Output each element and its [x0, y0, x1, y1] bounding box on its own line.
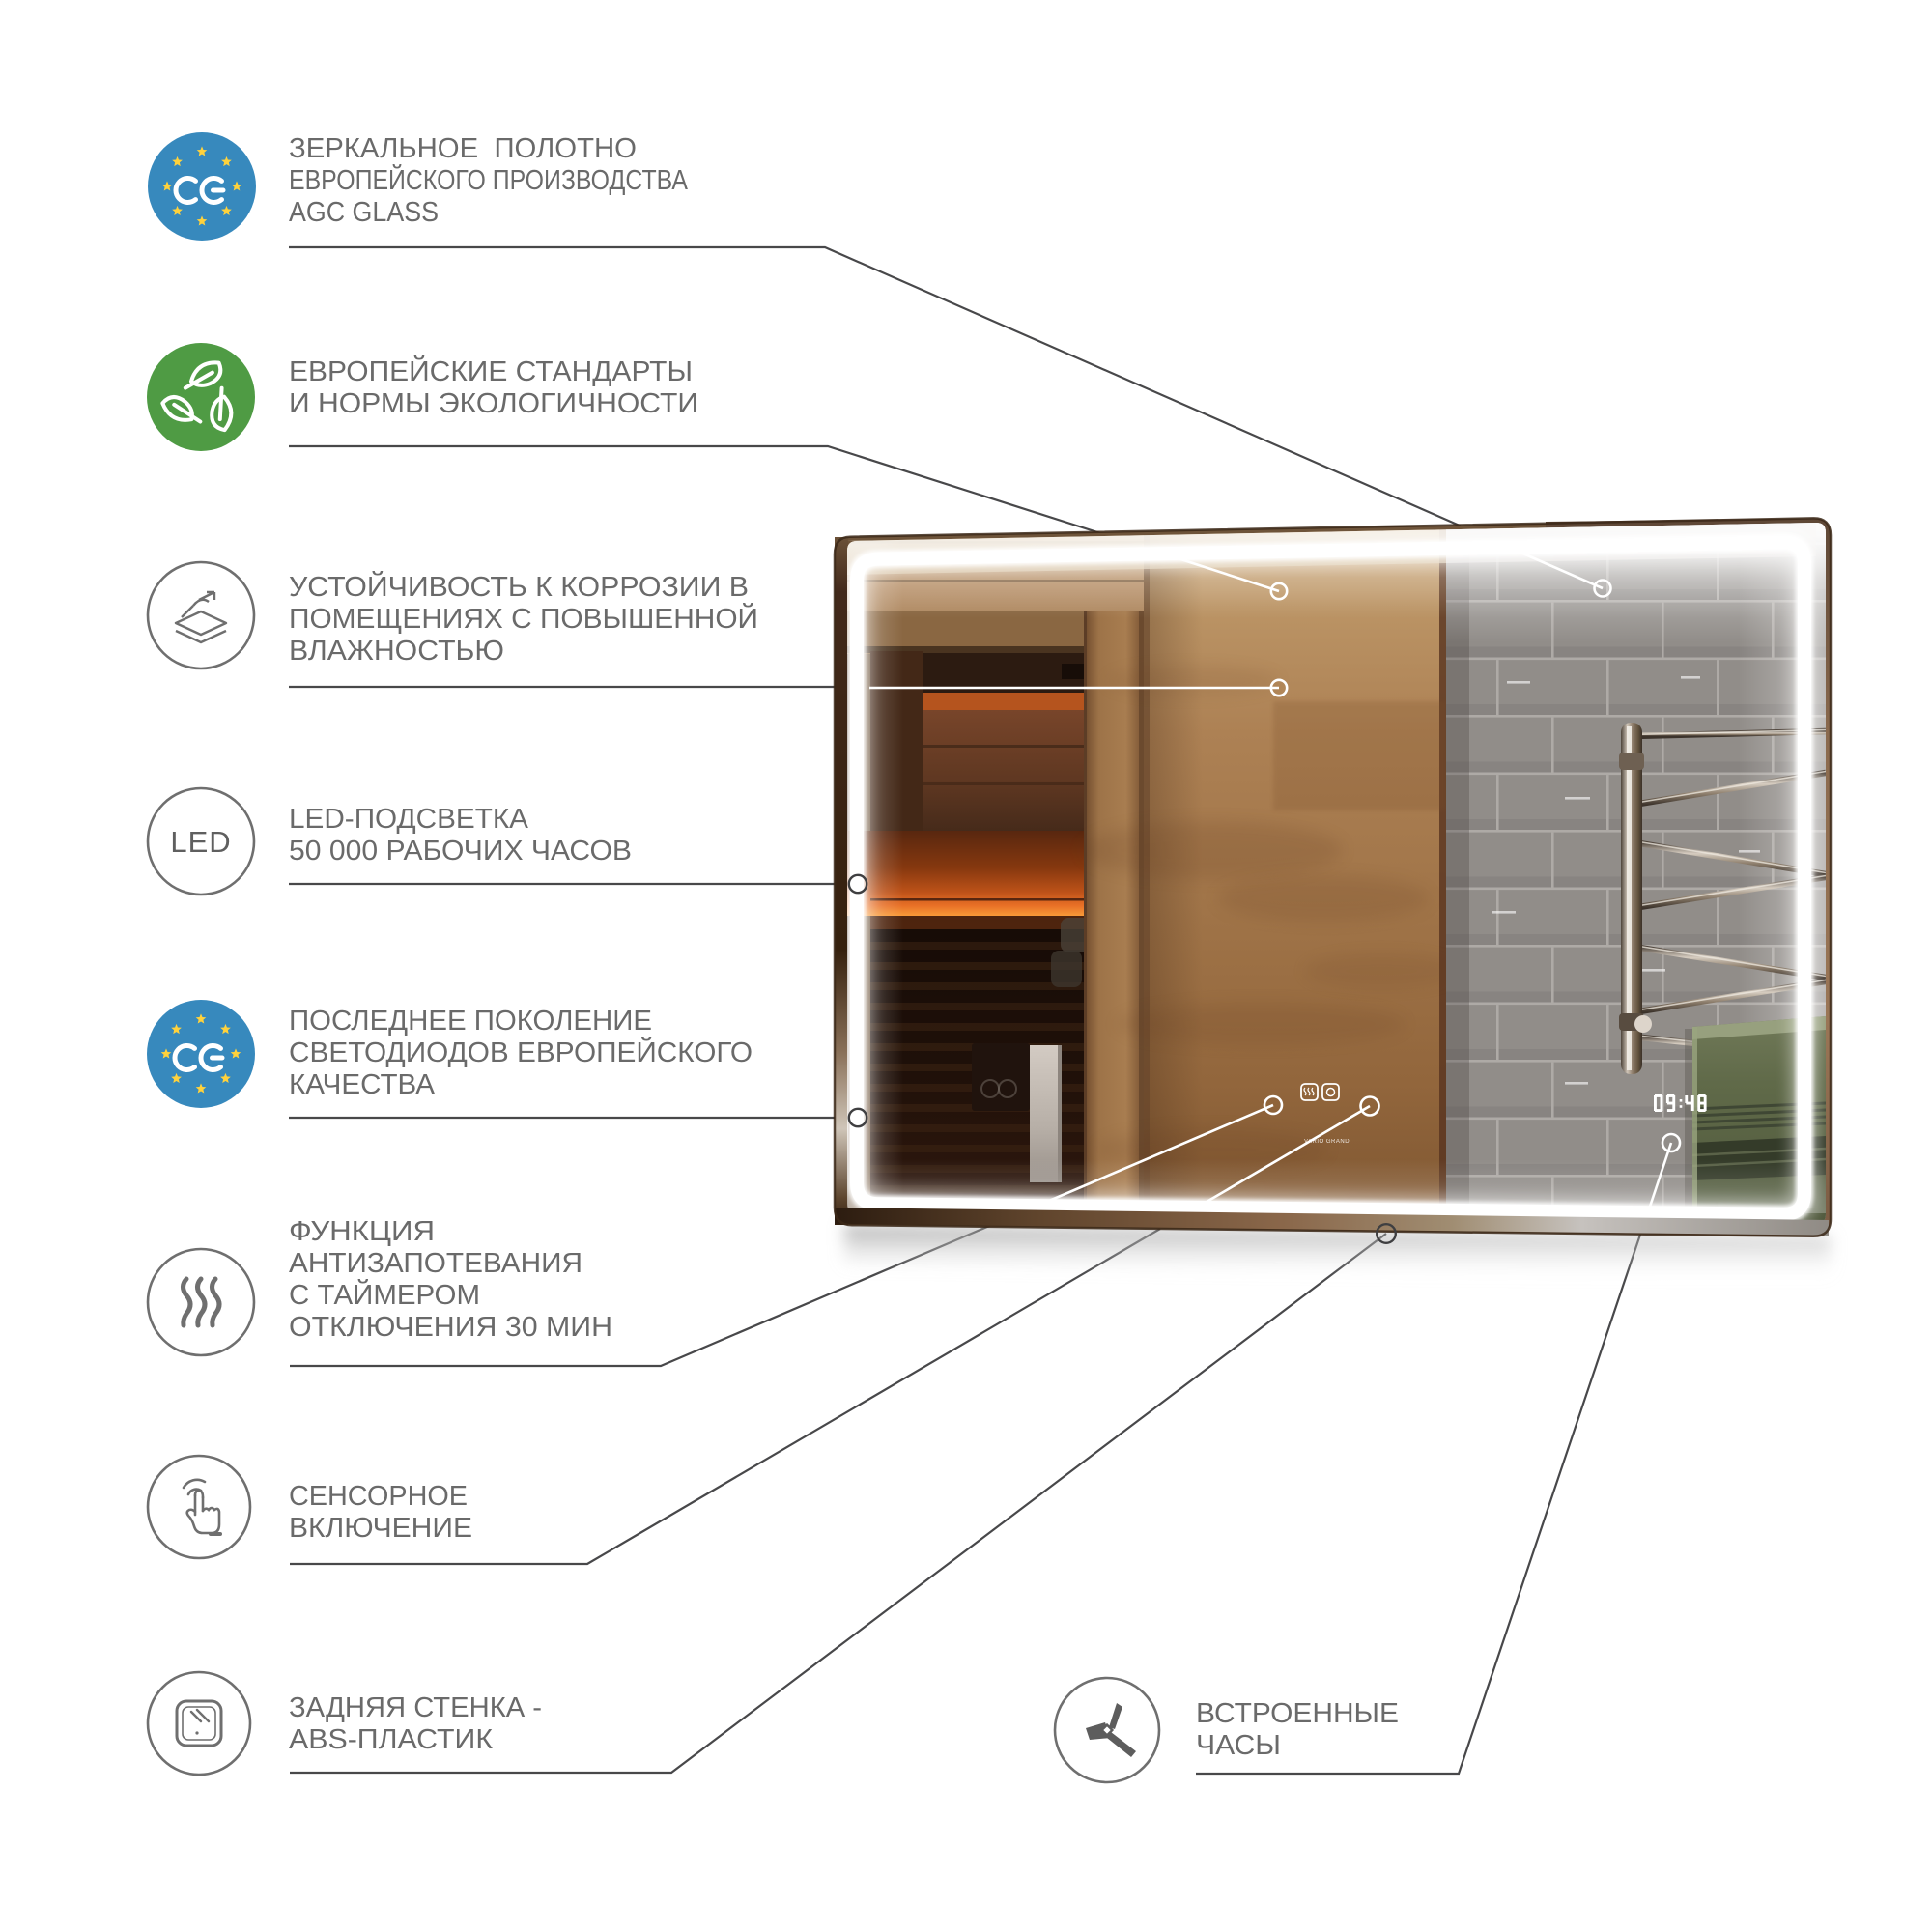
svg-text:ВСТРОЕННЫЕ: ВСТРОЕННЫЕ: [1196, 1698, 1399, 1729]
svg-text:ФУНКЦИЯ: ФУНКЦИЯ: [289, 1216, 435, 1247]
svg-text:С ТАЙМЕРОМ: С ТАЙМЕРОМ: [289, 1278, 480, 1311]
svg-text:ПОСЛЕДНЕЕ ПОКОЛЕНИЕ: ПОСЛЕДНЕЕ ПОКОЛЕНИЕ: [289, 1006, 652, 1037]
svg-text:ОТКЛЮЧЕНИЯ 30 МИН: ОТКЛЮЧЕНИЯ 30 МИН: [289, 1312, 612, 1343]
svg-text:ЗАДНЯЯ СТЕНКА -: ЗАДНЯЯ СТЕНКА -: [289, 1692, 542, 1723]
svg-text:ABS-ПЛАСТИК: ABS-ПЛАСТИК: [289, 1724, 493, 1755]
svg-text:LED: LED: [170, 825, 231, 859]
svg-text:ЗЕРКАЛЬНОЕ ПОЛОТНО: ЗЕРКАЛЬНОЕ ПОЛОТНО: [289, 133, 637, 164]
svg-text:LED-ПОДСВЕТКА: LED-ПОДСВЕТКА: [289, 804, 529, 835]
svg-text:AGC GLASS: AGC GLASS: [289, 197, 439, 228]
svg-text:КАЧЕСТВА: КАЧЕСТВА: [289, 1069, 436, 1100]
svg-text:ЧАСЫ: ЧАСЫ: [1196, 1730, 1281, 1761]
svg-text:АНТИЗАПОТЕВАНИЯ: АНТИЗАПОТЕВАНИЯ: [289, 1248, 582, 1279]
svg-text:УСТОЙЧИВОСТЬ К КОРРОЗИИ В: УСТОЙЧИВОСТЬ К КОРРОЗИИ В: [289, 570, 749, 603]
svg-text:ВЛАЖНОСТЬЮ: ВЛАЖНОСТЬЮ: [289, 636, 504, 667]
svg-text:ВКЛЮЧЕНИЕ: ВКЛЮЧЕНИЕ: [289, 1513, 472, 1544]
svg-text:50 000 РАБОЧИХ ЧАСОВ: 50 000 РАБОЧИХ ЧАСОВ: [289, 836, 632, 867]
svg-text:ПОМЕЩЕНИЯХ С ПОВЫШЕННОЙ: ПОМЕЩЕНИЯХ С ПОВЫШЕННОЙ: [289, 602, 758, 635]
svg-text:ЕВРОПЕЙСКОГО ПРОИЗВОДСТВА: ЕВРОПЕЙСКОГО ПРОИЗВОДСТВА: [289, 163, 689, 196]
svg-text:ЕВРОПЕЙСКИЕ СТАНДАРТЫ: ЕВРОПЕЙСКИЕ СТАНДАРТЫ: [289, 355, 693, 387]
svg-text:СВЕТОДИОДОВ ЕВРОПЕЙСКОГО: СВЕТОДИОДОВ ЕВРОПЕЙСКОГО: [289, 1036, 753, 1068]
svg-text:И НОРМЫ ЭКОЛОГИЧНОСТИ: И НОРМЫ ЭКОЛОГИЧНОСТИ: [289, 388, 698, 419]
svg-text:СЕНСОРНОЕ: СЕНСОРНОЕ: [289, 1481, 468, 1512]
